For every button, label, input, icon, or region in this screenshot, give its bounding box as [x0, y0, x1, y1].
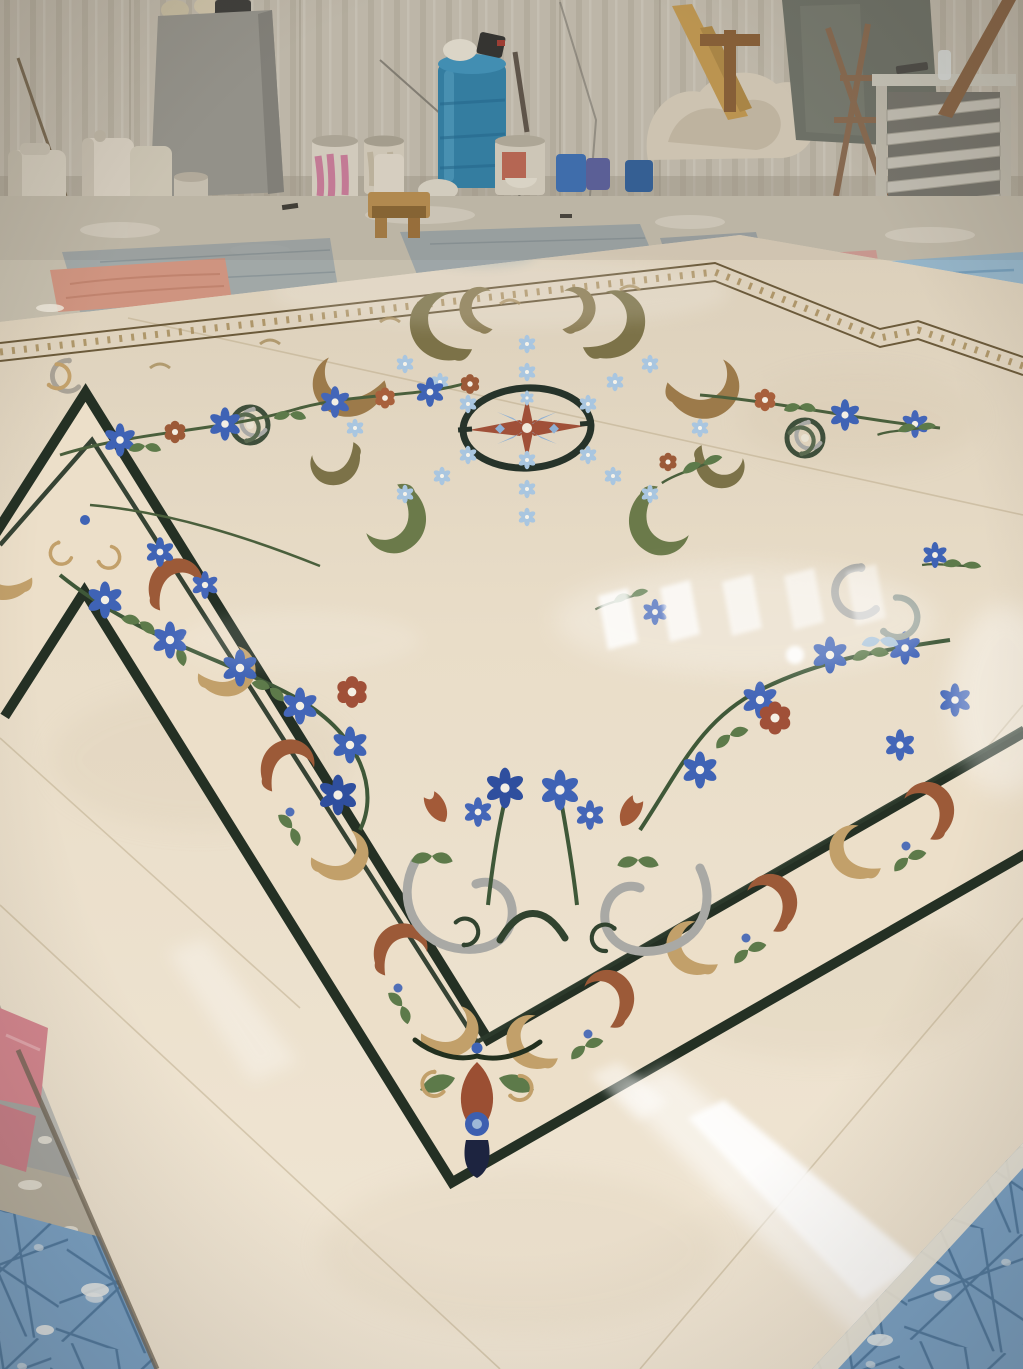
photo-vignette: [0, 0, 1023, 1369]
workshop-photo: A large freshly polished crema-marfil ma…: [0, 0, 1023, 1369]
